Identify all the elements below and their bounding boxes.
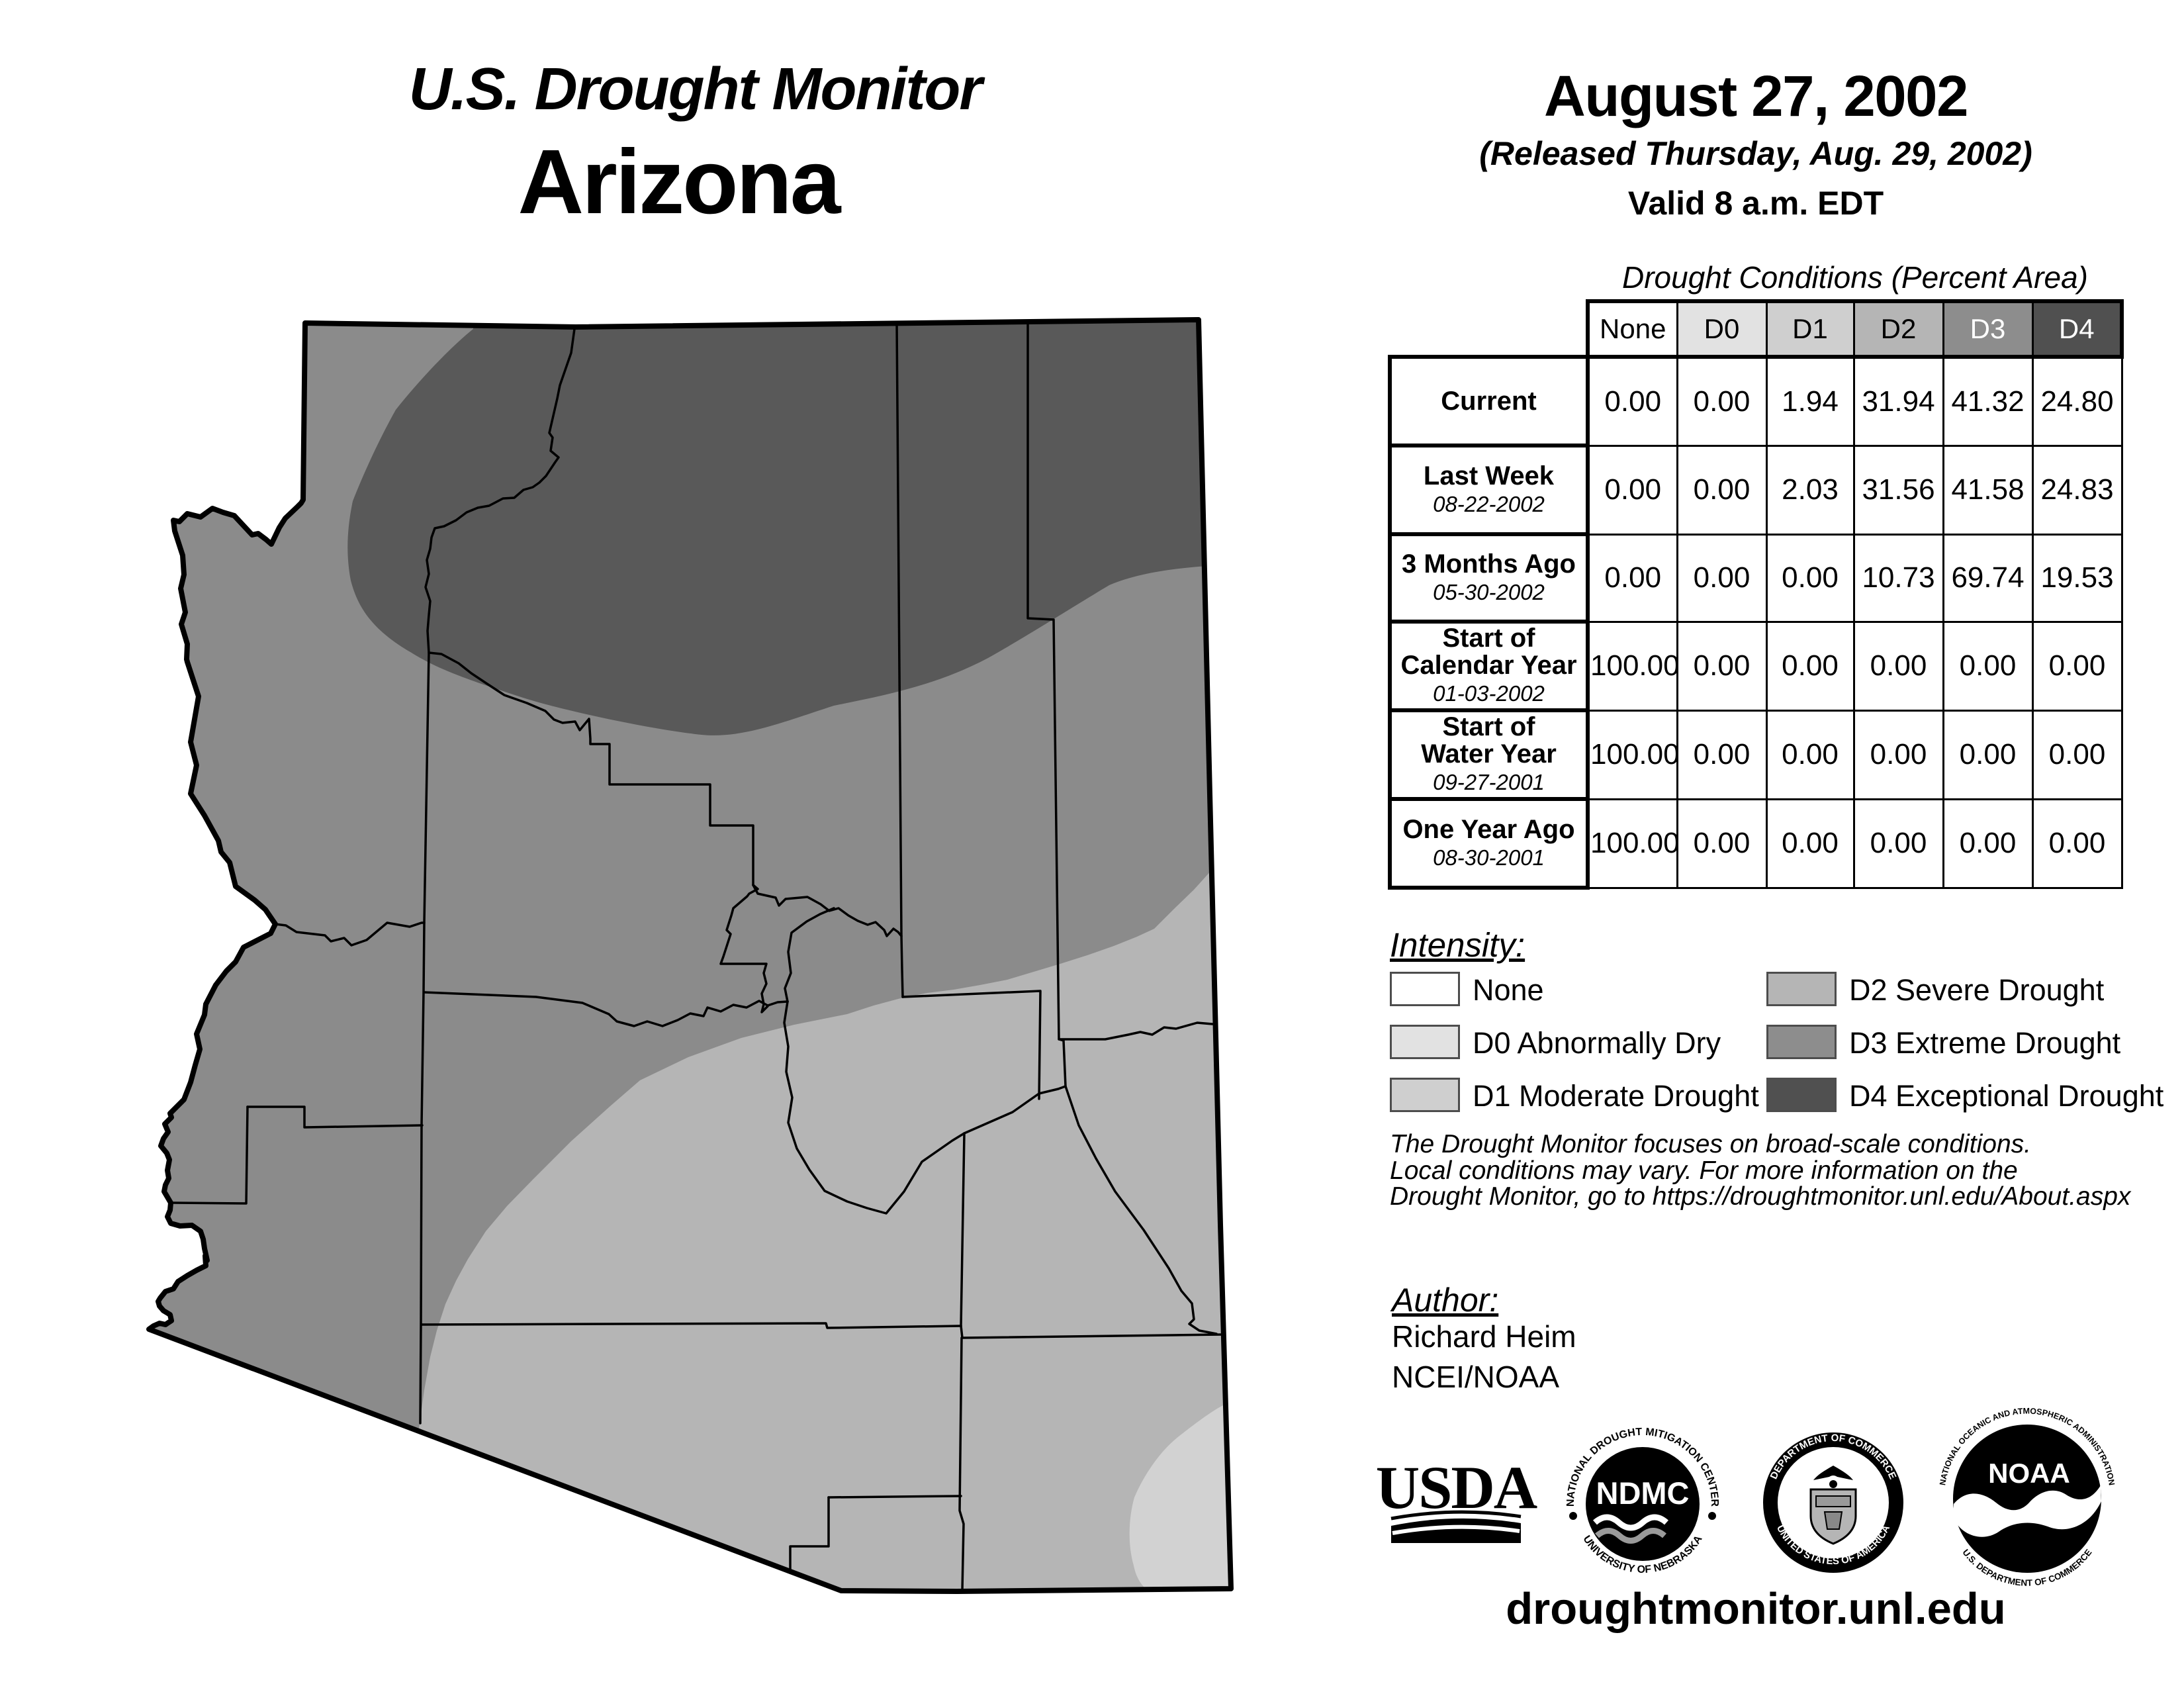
svg-text:★: ★ [1780, 1499, 1790, 1511]
svg-text:NDMC: NDMC [1596, 1476, 1690, 1511]
svg-text:NOAA: NOAA [1988, 1458, 2070, 1489]
svg-text:★: ★ [1876, 1499, 1885, 1511]
